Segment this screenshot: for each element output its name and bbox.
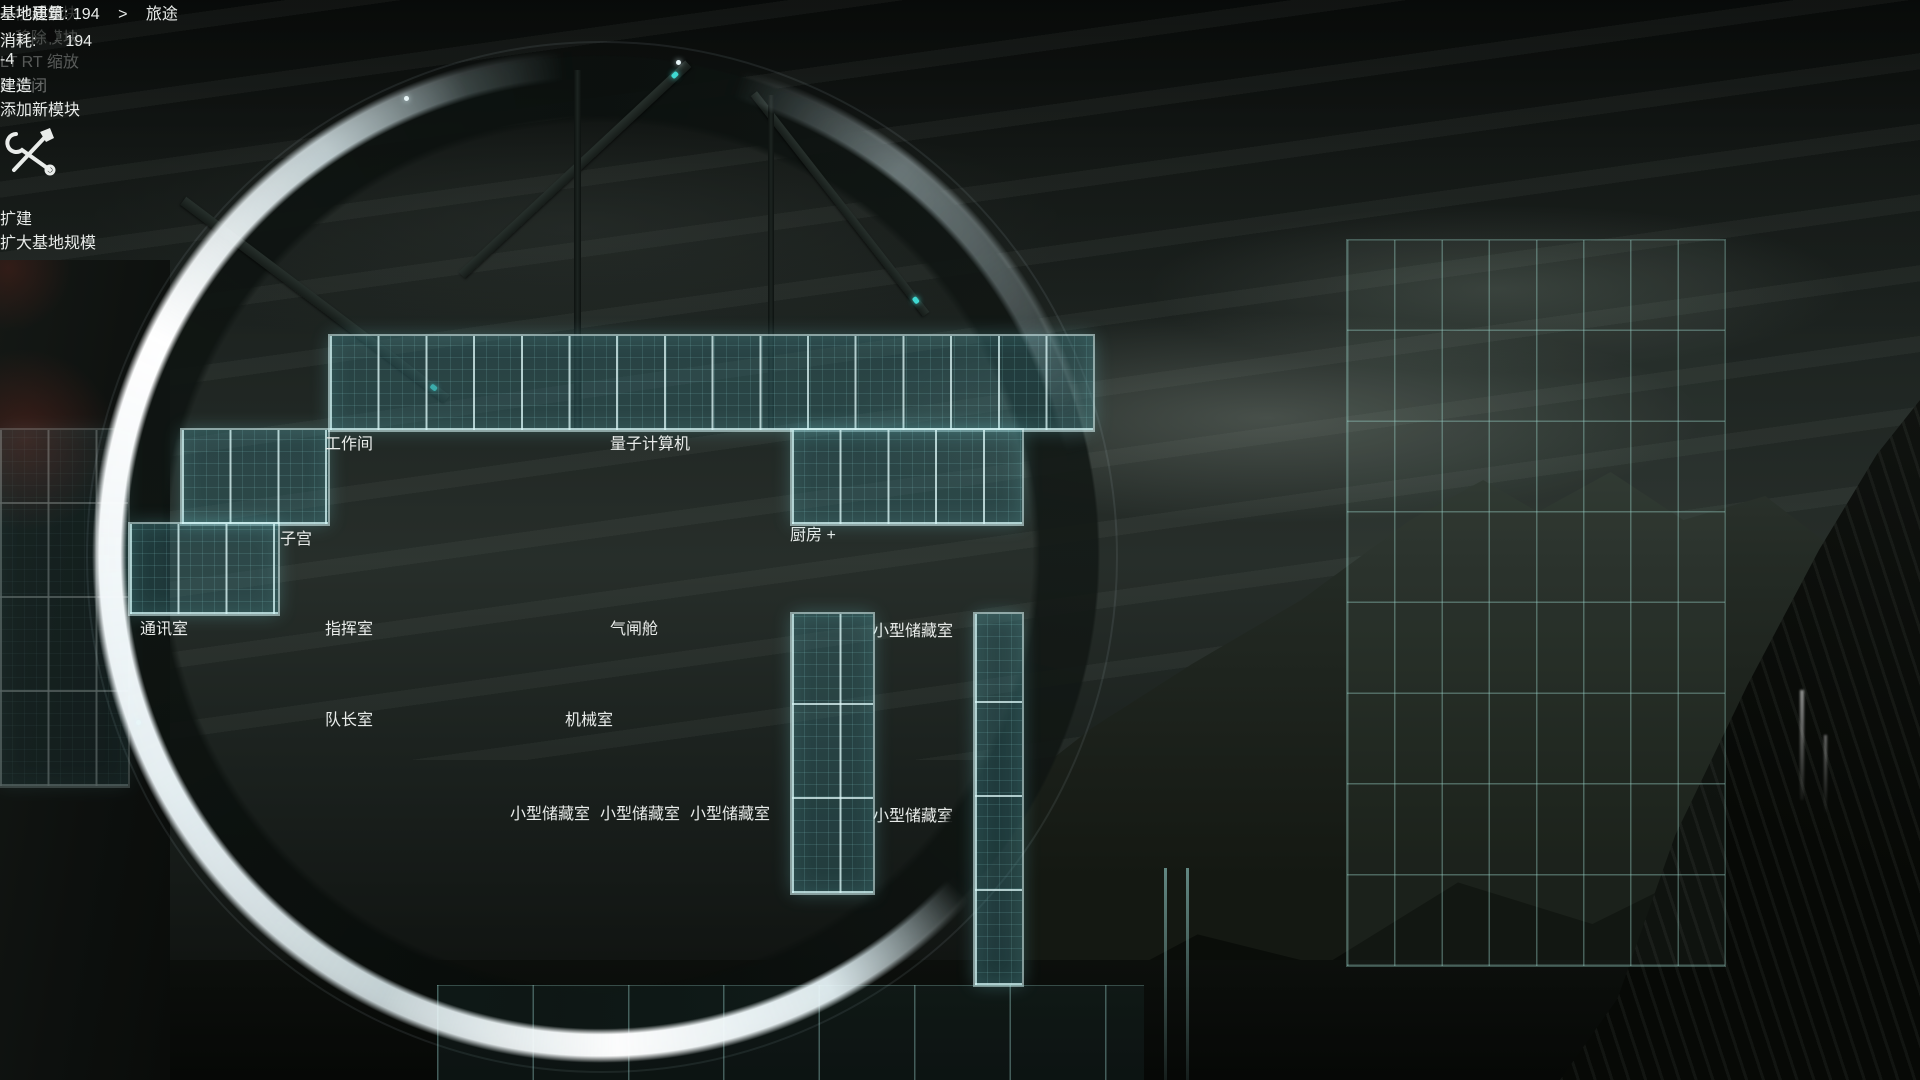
- build-grid-right-1[interactable]: [792, 430, 1022, 524]
- room-quantum-computer[interactable]: 量子计算机: [610, 430, 790, 525]
- waterfall-streak: [1824, 735, 1827, 815]
- build-grid-right-3[interactable]: [975, 614, 1022, 985]
- build-grid-left-2[interactable]: [130, 524, 278, 614]
- room-label: 子宫: [280, 531, 312, 548]
- build-grid-far-left[interactable]: [0, 430, 128, 786]
- build-grid-bottom[interactable]: [437, 985, 1144, 1080]
- room-label: 机械室: [565, 712, 613, 729]
- hammer-wrench-icon: [0, 120, 80, 189]
- room-label: 队长室: [325, 712, 373, 729]
- journey-droplet-icon: [41, 33, 61, 50]
- base-mass-value: 194: [73, 6, 100, 23]
- room-womb[interactable]: 子宫: [280, 525, 510, 613]
- room-label: 量子计算机: [610, 436, 690, 453]
- room-label: 工作间: [325, 436, 373, 453]
- room-comms[interactable]: 通讯室: [140, 615, 325, 703]
- build-grid-right-2[interactable]: [792, 614, 873, 893]
- build-grid-left-1[interactable]: [182, 430, 328, 524]
- room-label: 气闸舱: [610, 621, 658, 638]
- build-title: 建造: [0, 72, 80, 96]
- room-label: 指挥室: [325, 621, 373, 638]
- room-airlock[interactable]: 气闸舱: [610, 615, 790, 703]
- journey-consumption-value: 194: [65, 33, 92, 50]
- weight-icon: 194: [73, 6, 104, 23]
- menu-item-build[interactable]: 建造 添加新模块: [0, 72, 80, 189]
- waterfall-streak: [1800, 690, 1804, 800]
- build-grid-top[interactable]: [330, 336, 1093, 430]
- nav-light: [136, 720, 141, 725]
- room-captain[interactable]: 队长室: [325, 706, 510, 794]
- ring-spoke: [1186, 868, 1189, 1080]
- mass-stats-panel: 基地质量: 194 > 旅途消耗: 194 -4: [0, 0, 178, 69]
- room-command[interactable]: 指挥室: [325, 615, 565, 703]
- build-subtitle: 添加新模块: [0, 96, 80, 120]
- nav-light: [676, 60, 681, 65]
- nav-light: [404, 96, 409, 101]
- expand-title: 扩建: [0, 205, 96, 229]
- room-workshop[interactable]: 工作间: [325, 430, 565, 525]
- room-label: 通讯室: [140, 621, 188, 638]
- mass-delta: -4: [0, 51, 14, 68]
- arrow-right: >: [118, 6, 127, 23]
- expansion-grid-right[interactable]: [1347, 240, 1725, 966]
- base-mass-label: 基地质量:: [0, 6, 68, 23]
- expand-subtitle: 扩大基地规模: [0, 229, 96, 253]
- base-building-screen: 工作间 量子计算机 子宫 厨房 + 通讯室 指挥室 气闸舱 小型储藏室 队长室 …: [0, 0, 1920, 1080]
- room-machine[interactable]: 机械室: [565, 706, 790, 794]
- ring-spoke: [1164, 868, 1167, 1080]
- room-unlabeled[interactable]: [640, 525, 790, 613]
